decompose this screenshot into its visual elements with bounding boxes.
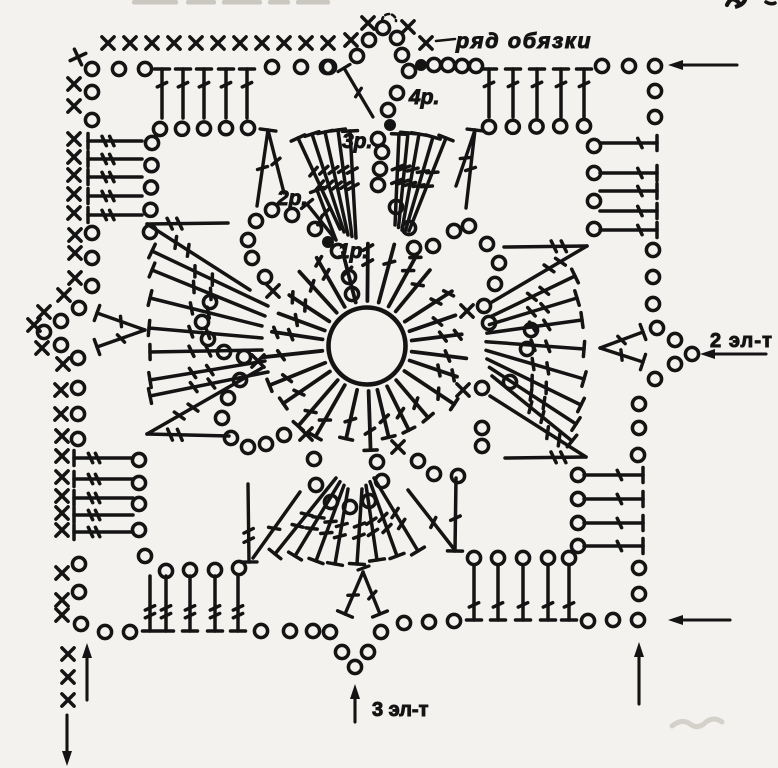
svg-text:3 эл-т: 3 эл-т bbox=[372, 699, 429, 721]
svg-text:4р.: 4р. bbox=[408, 86, 439, 109]
svg-text:ряд обязки: ряд обязки bbox=[455, 29, 592, 53]
svg-text:2 эл-т: 2 эл-т bbox=[710, 330, 773, 352]
svg-text:1р.: 1р. bbox=[338, 240, 368, 263]
svg-text:3р.: 3р. bbox=[342, 130, 372, 153]
svg-text:2р.: 2р. bbox=[276, 187, 307, 210]
